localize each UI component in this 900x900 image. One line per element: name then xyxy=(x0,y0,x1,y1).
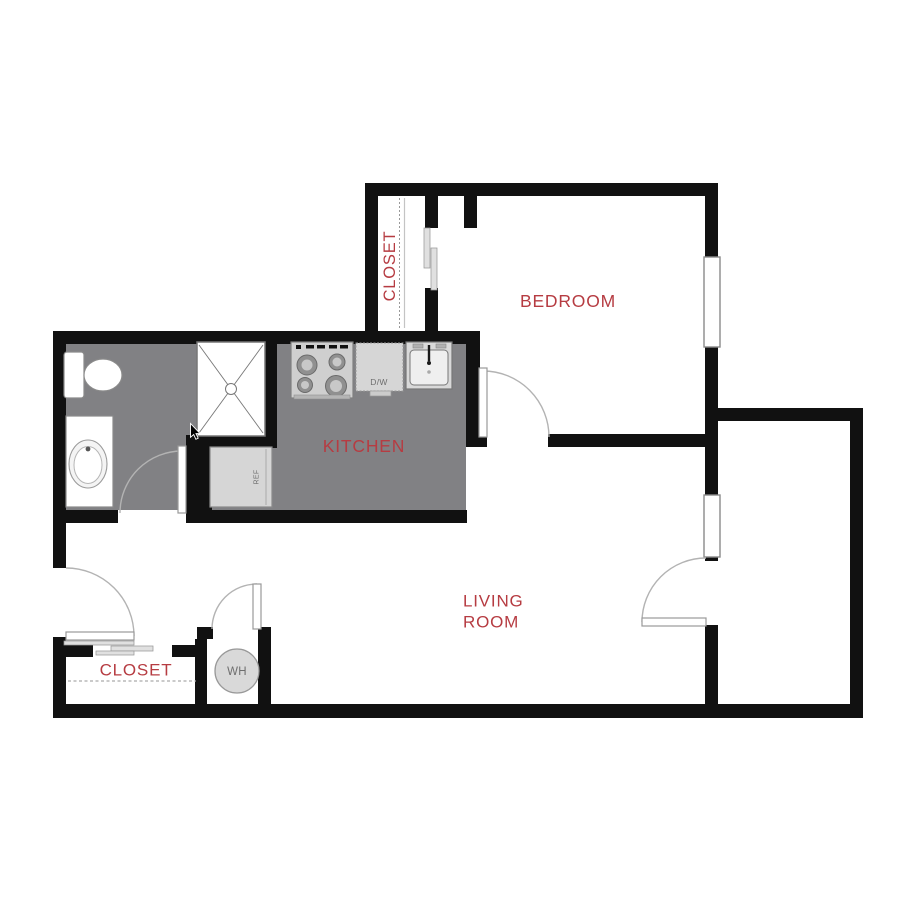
wall-segment xyxy=(197,627,213,639)
wall-segment xyxy=(258,627,271,718)
entry-closet-label: CLOSET xyxy=(100,661,173,680)
sliding-door-panel xyxy=(424,228,430,268)
wall-segment xyxy=(705,625,718,718)
wall-segment xyxy=(195,639,207,718)
water-heater-label: WH xyxy=(227,666,247,678)
bedroom-door xyxy=(479,368,549,437)
living-room-window xyxy=(704,495,720,557)
wall-segment xyxy=(212,510,467,523)
vanity-sink-fixture xyxy=(66,416,113,507)
refrigerator-fixture: REF xyxy=(210,447,272,507)
living-room-label-line1: LIVING xyxy=(463,592,524,611)
wall-segment xyxy=(264,331,277,448)
sliding-door-track xyxy=(64,641,134,645)
wall-segment xyxy=(464,196,477,228)
dishwasher-label: D/W xyxy=(370,377,387,387)
entry-door xyxy=(66,568,134,640)
dishwasher-fixture: D/W xyxy=(356,343,403,396)
sliding-door-panel xyxy=(111,646,153,651)
water-heater-closet-door xyxy=(212,584,261,629)
shower-fixture xyxy=(197,342,265,436)
water-heater-fixture: WH xyxy=(215,649,259,693)
sliding-door-panel xyxy=(96,651,134,655)
kitchen-sink-fixture xyxy=(406,342,452,389)
wall-segment xyxy=(365,183,378,344)
wall-segment xyxy=(365,183,718,196)
wall-segment xyxy=(425,196,438,228)
floor-plan-svg: D/W REF WH xyxy=(0,0,900,900)
floor-plan-image: D/W REF WH xyxy=(0,0,900,900)
faucet-dot xyxy=(86,447,91,452)
bedroom-label: BEDROOM xyxy=(520,291,616,311)
bedroom-closet-label: CLOSET xyxy=(381,231,399,302)
sliding-door-panel xyxy=(431,248,437,290)
wall-segment xyxy=(705,408,863,421)
stove-fixture xyxy=(291,342,353,399)
wall-segment xyxy=(466,331,480,447)
wall-segment xyxy=(186,435,212,523)
living-room-label-line2: ROOM xyxy=(463,613,519,632)
wall-segment xyxy=(53,645,93,657)
wall-segment xyxy=(425,288,438,344)
wall-segment xyxy=(53,704,863,718)
living-room-door xyxy=(642,558,706,626)
wall-segment xyxy=(548,434,718,447)
kitchen-label: KITCHEN xyxy=(323,436,405,456)
wall-segment xyxy=(850,408,863,718)
bedroom-window xyxy=(704,257,720,347)
wall-segment xyxy=(53,510,118,523)
refrigerator-label: REF xyxy=(254,470,261,485)
